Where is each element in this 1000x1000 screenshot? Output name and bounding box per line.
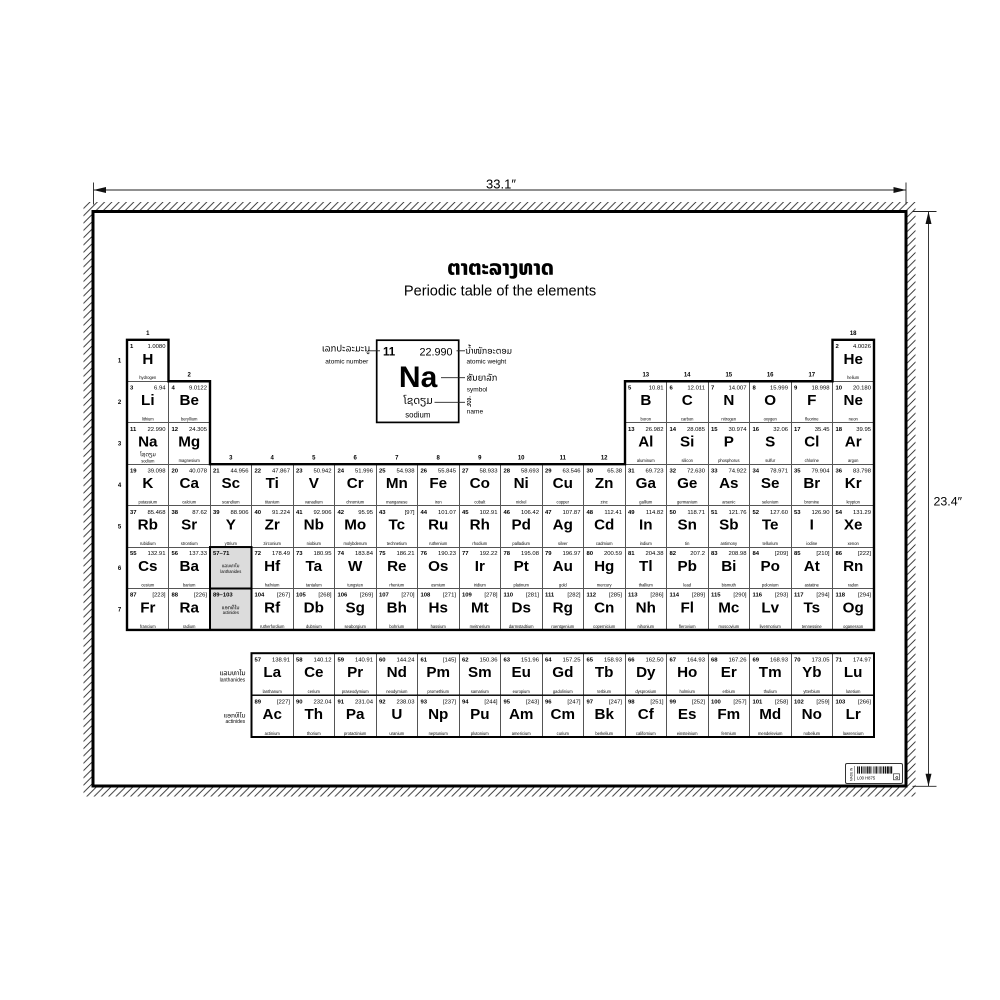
svg-text:beryllium: beryllium xyxy=(181,417,198,422)
svg-text:[293]: [293] xyxy=(775,593,788,599)
svg-text:41: 41 xyxy=(296,510,303,516)
svg-text:6.94: 6.94 xyxy=(154,385,166,391)
svg-text:58: 58 xyxy=(296,657,303,663)
svg-text:68: 68 xyxy=(711,657,718,663)
svg-text:21: 21 xyxy=(213,468,220,474)
svg-text:46: 46 xyxy=(504,510,511,516)
svg-text:hydrogen: hydrogen xyxy=(139,375,157,380)
svg-text:73: 73 xyxy=(296,551,303,557)
svg-text:cadmium: cadmium xyxy=(596,541,613,546)
svg-text:He: He xyxy=(843,351,862,368)
svg-text:22: 22 xyxy=(255,468,262,474)
svg-text:boron: boron xyxy=(641,417,652,422)
svg-text:erbium: erbium xyxy=(723,689,736,694)
svg-text:99: 99 xyxy=(670,699,677,705)
svg-text:[290]: [290] xyxy=(733,593,746,599)
svg-text:barium: barium xyxy=(183,582,196,587)
svg-text:phosphorus: phosphorus xyxy=(718,458,739,463)
svg-text:manganese: manganese xyxy=(386,499,408,504)
svg-text:57: 57 xyxy=(255,657,262,663)
svg-text:65: 65 xyxy=(587,657,594,663)
svg-text:Ca: Ca xyxy=(179,475,199,492)
svg-text:lanthanides: lanthanides xyxy=(220,569,241,574)
svg-text:87: 87 xyxy=(130,593,137,599)
svg-text:indium: indium xyxy=(640,541,653,546)
svg-text:11: 11 xyxy=(383,347,396,359)
svg-text:53: 53 xyxy=(794,510,801,516)
svg-text:astatine: astatine xyxy=(805,582,820,587)
svg-text:107.87: 107.87 xyxy=(562,510,580,516)
svg-text:helium: helium xyxy=(847,375,860,380)
svg-text:W: W xyxy=(348,558,363,575)
svg-text:11: 11 xyxy=(560,455,567,461)
svg-text:89: 89 xyxy=(255,699,262,705)
svg-text:1.0080: 1.0080 xyxy=(147,344,166,350)
svg-text:germanium: germanium xyxy=(677,499,698,504)
svg-text:16: 16 xyxy=(767,372,774,378)
svg-text:tungsten: tungsten xyxy=(347,582,363,587)
svg-text:No: No xyxy=(802,706,822,723)
svg-text:Mo: Mo xyxy=(344,517,366,534)
svg-text:holmium: holmium xyxy=(679,689,695,694)
svg-text:111: 111 xyxy=(545,593,555,599)
svg-text:Cd: Cd xyxy=(594,517,614,534)
svg-text:iridium: iridium xyxy=(474,582,487,587)
svg-text:♻: ♻ xyxy=(895,775,899,780)
svg-text:aluminum: aluminum xyxy=(637,458,655,463)
svg-text:167.26: 167.26 xyxy=(728,657,747,663)
svg-text:26: 26 xyxy=(421,468,428,474)
svg-text:B: B xyxy=(640,392,651,409)
svg-text:Se: Se xyxy=(761,475,780,492)
svg-text:110: 110 xyxy=(504,593,514,599)
svg-text:arsenic: arsenic xyxy=(722,499,735,504)
svg-text:Ga: Ga xyxy=(636,475,657,492)
svg-text:33.1″: 33.1″ xyxy=(486,176,516,191)
svg-text:Pt: Pt xyxy=(514,558,529,575)
svg-text:Ge: Ge xyxy=(677,475,697,492)
svg-text:actinides: actinides xyxy=(225,719,245,725)
svg-text:90: 90 xyxy=(296,699,303,705)
svg-text:americium: americium xyxy=(512,731,531,736)
svg-text:roentgenium: roentgenium xyxy=(551,624,574,629)
svg-text:Lr: Lr xyxy=(846,706,861,723)
svg-text:Ni: Ni xyxy=(514,475,529,492)
svg-text:58.933: 58.933 xyxy=(479,468,498,474)
svg-text:35.45: 35.45 xyxy=(815,427,830,433)
svg-text:28: 28 xyxy=(504,468,511,474)
svg-text:36: 36 xyxy=(836,468,843,474)
svg-text:180.95: 180.95 xyxy=(313,551,332,557)
svg-text:207.2: 207.2 xyxy=(690,551,705,557)
svg-text:samarium: samarium xyxy=(471,689,490,694)
svg-text:[285]: [285] xyxy=(609,593,622,599)
svg-text:15: 15 xyxy=(725,372,732,378)
svg-text:lanthanides: lanthanides xyxy=(220,677,246,683)
svg-text:Np: Np xyxy=(428,706,448,723)
svg-text:symbol: symbol xyxy=(467,387,488,394)
svg-text:Po: Po xyxy=(760,558,779,575)
svg-text:63: 63 xyxy=(504,657,511,663)
svg-text:Lv: Lv xyxy=(761,600,779,617)
svg-text:berkelium: berkelium xyxy=(595,731,613,736)
svg-text:70: 70 xyxy=(794,657,801,663)
svg-text:10: 10 xyxy=(518,455,525,461)
svg-text:Tc: Tc xyxy=(388,517,405,534)
svg-text:titanium: titanium xyxy=(265,499,280,504)
svg-text:O: O xyxy=(764,392,776,409)
svg-text:40.078: 40.078 xyxy=(189,468,208,474)
svg-text:13: 13 xyxy=(628,427,635,433)
svg-text:Ts: Ts xyxy=(803,600,820,617)
svg-text:Te: Te xyxy=(762,517,779,534)
svg-text:Rh: Rh xyxy=(470,517,490,534)
svg-text:[289]: [289] xyxy=(692,593,705,599)
svg-text:Bi: Bi xyxy=(721,558,736,575)
svg-text:Sb: Sb xyxy=(719,517,738,534)
svg-text:118.71: 118.71 xyxy=(687,510,705,516)
svg-text:108: 108 xyxy=(421,593,432,599)
svg-text:47: 47 xyxy=(545,510,552,516)
svg-text:14: 14 xyxy=(670,427,677,433)
svg-text:231.04: 231.04 xyxy=(355,699,374,705)
svg-text:molybdenum: molybdenum xyxy=(343,541,367,546)
svg-text:[226]: [226] xyxy=(194,593,207,599)
svg-text:Nb: Nb xyxy=(304,517,324,534)
svg-text:88: 88 xyxy=(172,593,179,599)
svg-text:66: 66 xyxy=(628,657,635,663)
svg-text:208.98: 208.98 xyxy=(728,551,747,557)
svg-text:82: 82 xyxy=(670,551,677,557)
svg-text:Hs: Hs xyxy=(428,600,447,617)
svg-text:Ir: Ir xyxy=(475,558,485,575)
svg-text:neptunium: neptunium xyxy=(429,731,449,736)
svg-text:117: 117 xyxy=(794,593,804,599)
svg-text:78: 78 xyxy=(504,551,511,557)
svg-text:[281]: [281] xyxy=(526,593,539,599)
svg-text:yttrium: yttrium xyxy=(225,541,238,546)
svg-text:[266]: [266] xyxy=(858,699,871,705)
svg-text:sodium: sodium xyxy=(405,410,430,419)
svg-text:62: 62 xyxy=(462,657,469,663)
svg-text:18.998: 18.998 xyxy=(811,385,830,391)
svg-text:173.05: 173.05 xyxy=(811,657,830,663)
svg-text:42: 42 xyxy=(338,510,345,516)
svg-text:35: 35 xyxy=(794,468,801,474)
svg-text:20.180: 20.180 xyxy=(853,385,872,391)
svg-text:[286]: [286] xyxy=(650,593,663,599)
svg-text:dysprosium: dysprosium xyxy=(635,689,657,694)
svg-text:14: 14 xyxy=(684,372,691,378)
svg-text:ruthenium: ruthenium xyxy=(429,541,448,546)
svg-text:18: 18 xyxy=(836,427,843,433)
svg-text:72: 72 xyxy=(255,551,262,557)
svg-text:Os: Os xyxy=(428,558,448,575)
svg-text:cerium: cerium xyxy=(308,689,321,694)
svg-text:actinides: actinides xyxy=(223,610,239,615)
svg-text:11: 11 xyxy=(130,427,137,433)
svg-text:178.49: 178.49 xyxy=(272,551,290,557)
svg-text:meitnerium: meitnerium xyxy=(470,624,491,629)
svg-text:C: C xyxy=(682,392,693,409)
svg-text:Na: Na xyxy=(138,434,158,451)
svg-text:Ru: Ru xyxy=(428,517,448,534)
svg-text:atomic number: atomic number xyxy=(325,359,369,366)
svg-text:Cm: Cm xyxy=(551,706,575,723)
svg-text:nihonium: nihonium xyxy=(637,624,654,629)
svg-text:technetium: technetium xyxy=(387,541,408,546)
svg-text:Fl: Fl xyxy=(680,600,694,617)
svg-text:cobalt: cobalt xyxy=(474,499,486,504)
svg-text:Rg: Rg xyxy=(553,600,573,617)
svg-text:curium: curium xyxy=(557,731,570,736)
svg-text:[252]: [252] xyxy=(692,699,705,705)
svg-text:29: 29 xyxy=(545,468,552,474)
svg-text:Ra: Ra xyxy=(179,600,199,617)
svg-text:32.06: 32.06 xyxy=(773,427,788,433)
svg-text:cesium: cesium xyxy=(141,582,155,587)
svg-text:132.91: 132.91 xyxy=(147,551,165,557)
svg-text:118: 118 xyxy=(836,593,846,599)
svg-text:44: 44 xyxy=(421,510,428,516)
svg-text:bromine: bromine xyxy=(804,499,820,504)
svg-text:californium: californium xyxy=(636,731,656,736)
svg-text:102: 102 xyxy=(794,699,805,705)
svg-text:Mt: Mt xyxy=(471,600,489,617)
svg-text:94: 94 xyxy=(462,699,469,705)
svg-text:162.50: 162.50 xyxy=(645,657,664,663)
svg-text:30: 30 xyxy=(587,468,594,474)
svg-text:[269]: [269] xyxy=(360,593,373,599)
svg-text:61: 61 xyxy=(421,657,428,663)
svg-text:lanthanum: lanthanum xyxy=(263,689,283,694)
svg-text:190.23: 190.23 xyxy=(438,551,457,557)
svg-text:86: 86 xyxy=(836,551,843,557)
svg-text:204.38: 204.38 xyxy=(645,551,664,557)
svg-text:hafnium: hafnium xyxy=(265,582,280,587)
svg-text:151.96: 151.96 xyxy=(521,657,540,663)
svg-text:45: 45 xyxy=(462,510,469,516)
svg-text:nitrogen: nitrogen xyxy=(721,417,737,422)
svg-text:Md: Md xyxy=(759,706,781,723)
svg-text:113: 113 xyxy=(628,593,638,599)
svg-text:87.62: 87.62 xyxy=(192,510,207,516)
svg-text:Cr: Cr xyxy=(347,475,364,492)
svg-text:mercury: mercury xyxy=(597,582,613,587)
svg-text:Cu: Cu xyxy=(553,475,573,492)
svg-text:43: 43 xyxy=(379,510,386,516)
svg-text:24: 24 xyxy=(338,468,345,474)
svg-text:rubidium: rubidium xyxy=(140,541,156,546)
svg-text:4.0026: 4.0026 xyxy=(853,344,872,350)
svg-text:18: 18 xyxy=(850,331,857,337)
svg-text:[247]: [247] xyxy=(609,699,622,705)
svg-text:38: 38 xyxy=(172,510,179,516)
svg-text:[97]: [97] xyxy=(405,510,415,516)
svg-text:196.97: 196.97 xyxy=(562,551,580,557)
svg-text:58.693: 58.693 xyxy=(521,468,540,474)
svg-text:silver: silver xyxy=(558,541,568,546)
svg-text:83.798: 83.798 xyxy=(853,468,872,474)
svg-text:50.942: 50.942 xyxy=(313,468,331,474)
svg-text:10: 10 xyxy=(836,385,843,391)
svg-text:hassium: hassium xyxy=(431,624,447,629)
svg-text:97: 97 xyxy=(587,699,594,705)
svg-text:Mn: Mn xyxy=(386,475,408,492)
svg-text:Cl: Cl xyxy=(804,434,819,451)
svg-text:Ta: Ta xyxy=(305,558,322,575)
svg-text:Og: Og xyxy=(843,600,864,617)
svg-text:92.906: 92.906 xyxy=(313,510,332,516)
svg-text:Al: Al xyxy=(638,434,653,451)
svg-text:[210]: [210] xyxy=(816,551,829,557)
svg-text:fermium: fermium xyxy=(721,731,736,736)
svg-text:71: 71 xyxy=(836,657,843,663)
svg-text:nobelium: nobelium xyxy=(803,731,820,736)
svg-text:49: 49 xyxy=(628,510,635,516)
svg-text:palladium: palladium xyxy=(512,541,530,546)
svg-text:112: 112 xyxy=(587,593,597,599)
svg-text:232.04: 232.04 xyxy=(313,699,332,705)
svg-text:zinc: zinc xyxy=(601,499,608,504)
svg-text:niobium: niobium xyxy=(307,541,322,546)
svg-text:Li: Li xyxy=(141,392,155,409)
svg-text:Bh: Bh xyxy=(387,600,407,617)
svg-text:105: 105 xyxy=(296,593,307,599)
svg-text:chromium: chromium xyxy=(346,499,365,504)
svg-text:80: 80 xyxy=(587,551,594,557)
svg-text:54: 54 xyxy=(836,510,843,516)
svg-text:uranium: uranium xyxy=(389,731,404,736)
svg-text:55.845: 55.845 xyxy=(438,468,457,474)
svg-text:antimony: antimony xyxy=(720,541,738,546)
svg-text:104: 104 xyxy=(255,593,266,599)
svg-text:32: 32 xyxy=(670,468,677,474)
svg-text:12: 12 xyxy=(172,427,179,433)
svg-text:60: 60 xyxy=(379,657,386,663)
svg-text:Th: Th xyxy=(305,706,324,723)
svg-text:Cs: Cs xyxy=(138,558,157,575)
svg-text:Nd: Nd xyxy=(387,664,407,681)
svg-text:krypton: krypton xyxy=(846,499,860,504)
svg-text:Tb: Tb xyxy=(595,664,614,681)
svg-text:17: 17 xyxy=(808,372,815,378)
svg-text:L00 H875: L00 H875 xyxy=(857,776,876,781)
svg-text:89–103: 89–103 xyxy=(213,593,233,599)
svg-text:Mc: Mc xyxy=(718,600,739,617)
svg-text:55: 55 xyxy=(130,551,137,557)
svg-text:Nh: Nh xyxy=(636,600,656,617)
svg-text:28.085: 28.085 xyxy=(687,427,706,433)
svg-text:V: V xyxy=(309,475,320,492)
svg-text:[237]: [237] xyxy=(443,699,456,705)
svg-text:Hf: Hf xyxy=(264,558,281,575)
svg-text:zirconium: zirconium xyxy=(263,541,281,546)
svg-text:silicon: silicon xyxy=(682,458,694,463)
svg-text:20: 20 xyxy=(172,468,179,474)
svg-text:37: 37 xyxy=(130,510,137,516)
svg-text:Fe: Fe xyxy=(429,475,447,492)
svg-text:Na: Na xyxy=(399,361,438,394)
svg-text:Fr: Fr xyxy=(140,600,155,617)
svg-text:magnesium: magnesium xyxy=(179,458,201,463)
svg-text:Pu: Pu xyxy=(470,706,489,723)
svg-text:[259]: [259] xyxy=(816,699,829,705)
svg-text:158.93: 158.93 xyxy=(604,657,623,663)
svg-text:95: 95 xyxy=(504,699,511,705)
svg-text:79.904: 79.904 xyxy=(811,468,830,474)
svg-text:neon: neon xyxy=(849,417,859,422)
svg-text:115: 115 xyxy=(711,593,721,599)
svg-text:scandium: scandium xyxy=(222,499,240,504)
svg-text:vanadium: vanadium xyxy=(305,499,323,504)
svg-text:54.938: 54.938 xyxy=(396,468,415,474)
svg-text:186.21: 186.21 xyxy=(396,551,414,557)
svg-text:39.098: 39.098 xyxy=(147,468,166,474)
svg-text:oganesson: oganesson xyxy=(843,624,864,629)
svg-text:[244]: [244] xyxy=(484,699,497,705)
svg-text:K: K xyxy=(142,475,153,492)
svg-text:platinum: platinum xyxy=(513,582,529,587)
svg-text:144.24: 144.24 xyxy=(396,657,415,663)
svg-text:F: F xyxy=(807,392,816,409)
svg-text:rhenium: rhenium xyxy=(389,582,404,587)
svg-text:neodymium: neodymium xyxy=(386,689,408,694)
svg-text:101: 101 xyxy=(753,699,764,705)
svg-text:27: 27 xyxy=(462,468,469,474)
svg-text:Ba: Ba xyxy=(179,558,199,575)
svg-text:19: 19 xyxy=(130,468,137,474)
svg-text:Tl: Tl xyxy=(639,558,653,575)
svg-text:Db: Db xyxy=(304,600,324,617)
svg-text:carbon: carbon xyxy=(681,417,694,422)
svg-text:protactinium: protactinium xyxy=(344,731,367,736)
svg-text:Ne: Ne xyxy=(843,392,862,409)
svg-text:17: 17 xyxy=(794,427,801,433)
svg-text:Ti: Ti xyxy=(266,475,279,492)
svg-text:rhodium: rhodium xyxy=(472,541,487,546)
svg-text:I: I xyxy=(810,517,814,534)
svg-text:Ag: Ag xyxy=(553,517,573,534)
svg-text:91: 91 xyxy=(338,699,345,705)
svg-text:12: 12 xyxy=(601,455,608,461)
svg-text:114.82: 114.82 xyxy=(646,510,664,516)
svg-text:copernicium: copernicium xyxy=(593,624,616,629)
svg-text:109: 109 xyxy=(462,593,473,599)
svg-text:bismuth: bismuth xyxy=(722,582,737,587)
svg-text:Y: Y xyxy=(226,517,236,534)
svg-text:iodine: iodine xyxy=(806,541,818,546)
svg-text:[227]: [227] xyxy=(277,699,290,705)
svg-text:[258]: [258] xyxy=(775,699,788,705)
svg-text:[294]: [294] xyxy=(816,593,829,599)
svg-text:74.922: 74.922 xyxy=(728,468,746,474)
svg-text:copper: copper xyxy=(557,499,570,504)
svg-text:[223]: [223] xyxy=(152,593,165,599)
svg-text:Cf: Cf xyxy=(638,706,655,723)
svg-text:23.4″: 23.4″ xyxy=(934,495,963,509)
svg-text:Pd: Pd xyxy=(511,517,530,534)
svg-text:140.91: 140.91 xyxy=(355,657,373,663)
svg-text:dubnium: dubnium xyxy=(306,624,322,629)
svg-text:Cn: Cn xyxy=(594,600,614,617)
svg-text:Er: Er xyxy=(721,664,737,681)
svg-text:95.95: 95.95 xyxy=(358,510,373,516)
svg-text:tantalum: tantalum xyxy=(306,582,322,587)
svg-text:radon: radon xyxy=(848,582,859,587)
svg-text:thorium: thorium xyxy=(307,731,321,736)
svg-text:65.38: 65.38 xyxy=(607,468,622,474)
